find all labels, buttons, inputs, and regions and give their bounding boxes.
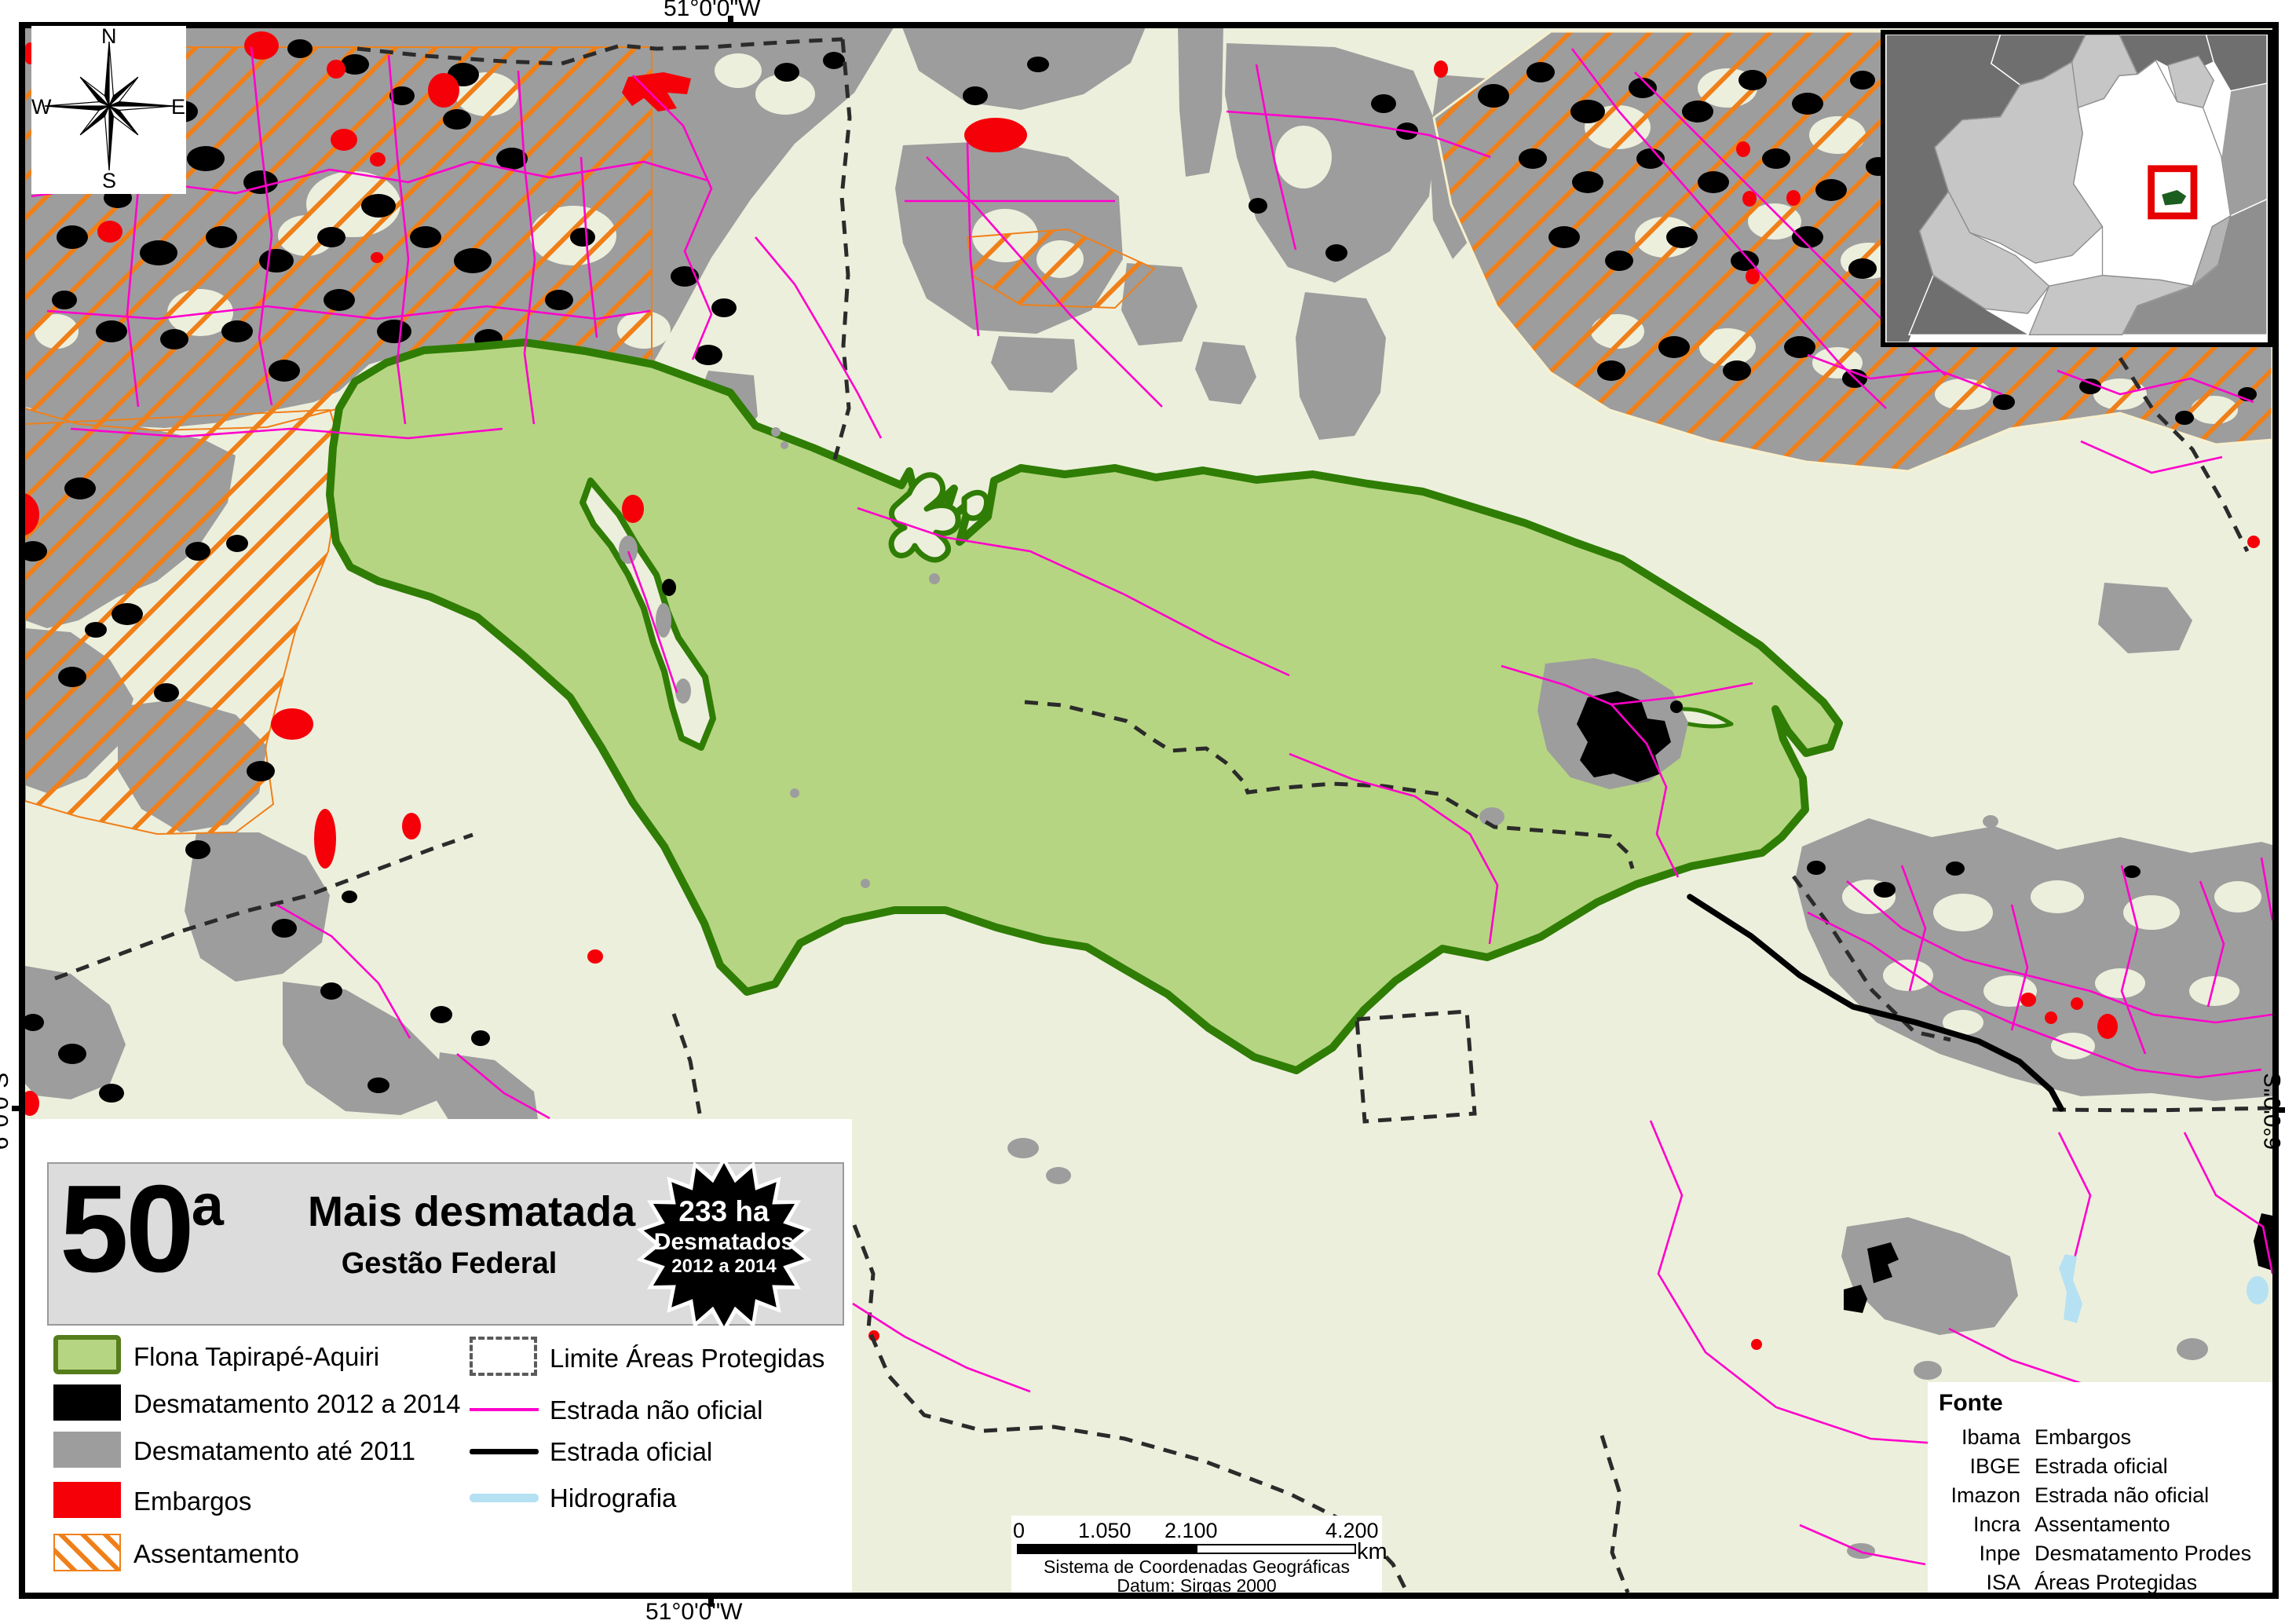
legend-label-desmatamento-ate-2011: Desmatamento até 2011 [133, 1436, 415, 1466]
badge-value: 233 ha [622, 1195, 826, 1229]
scale-bar: 0 1.050 2.100 4.200 km Sistema de Coorde… [1011, 1516, 1382, 1593]
source-row: ISAÁreas Protegidas [1932, 1568, 2251, 1597]
compass-north-label: N [101, 24, 117, 49]
legend-swatch-embargos [53, 1482, 121, 1518]
deforested-area-badge: 233 ha Desmatados 2012 a 2014 [622, 1195, 826, 1278]
coordinate-bottom: 51°0'0"W [645, 1599, 742, 1624]
rank-suffix: a [192, 1172, 224, 1238]
source-name: IBGE [1932, 1452, 2035, 1481]
legend-swatch-hidrografia [470, 1494, 539, 1502]
coordinate-left: 6°0'0"S [0, 1073, 14, 1150]
legend-label-hidrografia: Hidrografia [550, 1483, 676, 1513]
source-dataset: Assentamento [2035, 1510, 2251, 1539]
legend-swatch-desmatamento-2012-2014 [53, 1384, 121, 1421]
legend-swatch-flona [53, 1335, 121, 1374]
compass-rose: N E S W [31, 26, 186, 194]
badge-label: Desmatados [622, 1229, 826, 1256]
map-title-main: Mais desmatada [308, 1187, 590, 1236]
title-box: 50 a Mais desmatada Gestão Federal 233 h… [47, 1162, 844, 1326]
crs-line2: Datum: Sirgas 2000 [1011, 1575, 1382, 1597]
legend-label-estrada-oficial: Estrada oficial [550, 1437, 712, 1467]
legend-label-limite-areas-protegidas: Limite Áreas Protegidas [550, 1344, 824, 1373]
source-row: InpeDesmatamento Prodes [1932, 1539, 2251, 1568]
source-dataset: Embargos [2035, 1423, 2251, 1452]
source-box-title: Fonte [1939, 1390, 2003, 1417]
scale-bar-white-segment [1196, 1544, 1356, 1554]
source-row: IBGEEstrada oficial [1932, 1452, 2251, 1481]
legend-swatch-desmatamento-ate-2011 [53, 1432, 121, 1468]
legend-label-embargos: Embargos [133, 1487, 251, 1516]
legend-label-assentamento: Assentamento [133, 1539, 299, 1569]
scale-tick-1050: 1.050 [1078, 1519, 1132, 1543]
compass-west-label: W [31, 95, 51, 119]
source-box: Fonte IbamaEmbargos IBGEEstrada oficial … [1928, 1382, 2272, 1593]
coordinate-top: 51°0'0"W [664, 0, 760, 22]
rank-number: 50 [60, 1170, 192, 1288]
source-name: Incra [1932, 1510, 2035, 1539]
source-row: IbamaEmbargos [1932, 1423, 2251, 1452]
map-page: 51°0'0"W 51°0'0"W 6°0'0"S 6°0'0"S N E S … [0, 0, 2296, 1624]
source-name: ISA [1932, 1568, 2035, 1597]
source-row: ImazonEstrada não oficial [1932, 1481, 2251, 1510]
legend-swatch-assentamento [53, 1534, 121, 1571]
source-dataset: Estrada oficial [2035, 1452, 2251, 1481]
scale-bar-black-segment [1017, 1544, 1196, 1554]
legend-swatch-estrada-nao-oficial [470, 1408, 539, 1411]
map-title: Mais desmatada Gestão Federal [308, 1187, 590, 1281]
source-name: Imazon [1932, 1481, 2035, 1510]
crs-line1: Sistema de Coordenadas Geográficas [1011, 1556, 1382, 1578]
source-dataset: Estrada não oficial [2035, 1481, 2251, 1510]
source-dataset: Áreas Protegidas [2035, 1568, 2251, 1597]
location-inset-map [1881, 30, 2272, 347]
source-row: IncraAssentamento [1932, 1510, 2251, 1539]
legend-label-estrada-nao-oficial: Estrada não oficial [550, 1395, 763, 1425]
legend-label-flona: Flona Tapirapé-Aquiri [133, 1342, 379, 1372]
legend-label-desmatamento-2012-2014: Desmatamento 2012 a 2014 [133, 1389, 460, 1419]
badge-period: 2012 a 2014 [622, 1256, 826, 1278]
source-name: Ibama [1932, 1423, 2035, 1452]
rank: 50 a [60, 1170, 224, 1288]
compass-south-label: S [102, 169, 116, 193]
scale-tick-0: 0 [1013, 1519, 1025, 1543]
source-dataset: Desmatamento Prodes [2035, 1539, 2251, 1568]
source-name: Inpe [1932, 1539, 2035, 1568]
coordinate-right: 6°0'0"S [2260, 1073, 2287, 1150]
source-table: IbamaEmbargos IBGEEstrada oficial Imazon… [1932, 1423, 2251, 1597]
compass-star-icon [45, 42, 174, 170]
scale-tick-2100: 2.100 [1164, 1519, 1218, 1543]
legend-swatch-estrada-oficial [470, 1449, 539, 1454]
legend-swatch-limite-areas-protegidas [470, 1337, 537, 1376]
compass-east-label: E [171, 95, 185, 119]
map-title-sub: Gestão Federal [308, 1247, 590, 1281]
